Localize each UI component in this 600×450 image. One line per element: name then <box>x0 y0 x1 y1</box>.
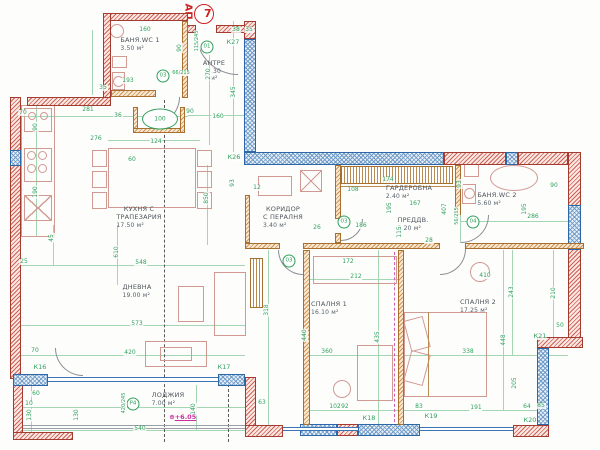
dimension-text: 35 <box>244 27 254 33</box>
fridge <box>24 195 52 221</box>
dimension-text: 212 <box>349 274 362 280</box>
dimension-text: 93 <box>230 178 236 188</box>
chair <box>92 171 107 188</box>
partition-wall <box>182 21 188 98</box>
dimension-text: 90 <box>549 183 559 189</box>
chair <box>92 150 107 167</box>
dimension-text: 540 <box>133 426 146 432</box>
window-marker: К19 <box>425 412 438 420</box>
masonry-wall <box>218 374 245 386</box>
living-wardrobe <box>250 258 263 308</box>
window-marker: К21 <box>534 332 547 340</box>
dimension-text: 38 <box>231 27 241 33</box>
dimension-text: 10 <box>24 401 34 407</box>
dimension-text: 191 <box>469 405 482 411</box>
bed-divider <box>428 312 429 397</box>
toilet-bowl <box>464 188 475 199</box>
masonry-wall <box>537 348 549 425</box>
dimension-text: 50 <box>555 323 565 329</box>
shaft-marker: 100 <box>142 109 178 130</box>
wardrobe-hangers <box>341 166 453 184</box>
dimension-text: 548 <box>134 260 147 266</box>
dining-table <box>108 148 196 208</box>
room-area: 17.25 м² <box>460 307 488 314</box>
exterior-wall <box>13 379 23 440</box>
dimension-text: 276 <box>89 136 102 142</box>
dimension-text: 286 <box>526 214 539 220</box>
window-marker: К20 <box>524 416 537 424</box>
dimension-text: 345 <box>231 85 237 98</box>
window-marker: К16 <box>34 363 47 371</box>
door-swing-arc <box>440 249 466 275</box>
dimension-text: 193 <box>121 78 134 84</box>
burner <box>38 164 47 173</box>
exterior-wall <box>13 432 73 440</box>
partition-wall <box>303 243 440 249</box>
dimension-text: 407 <box>442 202 448 215</box>
dimension-text: 190 <box>33 185 39 198</box>
dimension-text: 186 <box>354 223 367 229</box>
dimension-text: 243 <box>509 285 515 298</box>
dimension-text: 90 <box>33 122 39 132</box>
room-area: 2.40 м² <box>386 193 410 200</box>
dimension-text: 60 <box>31 391 41 397</box>
sink-1 <box>112 56 127 68</box>
dimension-text: 25 <box>19 259 29 265</box>
chair <box>197 171 212 188</box>
sofa <box>214 272 246 336</box>
hall-cabinet <box>258 176 292 196</box>
window-marker: К17 <box>218 363 231 371</box>
door-tag: Р4 <box>127 398 140 411</box>
masonry-wall <box>506 152 518 165</box>
room-area: 16.10 м² <box>311 309 339 316</box>
door-tag: 03 <box>338 216 351 229</box>
room-label: БАНЯ.WC 13.50 м² <box>120 37 159 45</box>
dimension-text: 172 <box>341 259 354 265</box>
dimension-text: 610 <box>114 245 120 258</box>
window-marker: К27 <box>227 38 240 46</box>
masonry-wall <box>358 424 420 436</box>
door-tag: 04 <box>467 216 480 229</box>
door-size: 66/215 <box>172 70 190 76</box>
dimension-text: 360 <box>320 349 333 355</box>
dimension-text: 70 <box>30 348 40 354</box>
chair <box>197 150 212 167</box>
partition-wall <box>398 250 404 425</box>
apartment-number: 7 <box>204 5 212 22</box>
dimension-text: 115 <box>397 225 403 238</box>
sink-2 <box>464 164 479 177</box>
dimension-text: 435 <box>375 330 381 343</box>
dimension-text: 85 <box>536 403 546 409</box>
dimension-line <box>303 410 549 411</box>
exterior-wall <box>103 13 188 21</box>
window-marker: К26 <box>228 153 241 161</box>
floor-plan-canvas: АП. 7 100БАНЯ.WC 13.50 м²АНТРЕ4.30 м²КУХ… <box>0 0 600 450</box>
sink-basin <box>28 112 36 120</box>
dimension-text: 90 <box>177 43 183 53</box>
dimension-text: 850 <box>204 191 210 204</box>
masonry-wall <box>244 39 256 152</box>
partition-wall <box>111 90 156 97</box>
room-area: 19.00 м² <box>122 292 150 299</box>
room-label: КОРИДОР С ПЕРАЛНЯ3.40 м² <box>263 206 303 222</box>
burner <box>27 151 36 160</box>
room-label: ГАРДЕРОБНА2.40 м² <box>386 185 432 193</box>
dimension-text: 573 <box>130 321 143 327</box>
dimension-text: 318 <box>264 303 270 316</box>
dimension-text: 26 <box>312 225 322 231</box>
dimension-text: 70 <box>18 110 28 116</box>
exterior-wall <box>245 425 283 437</box>
dimension-text: 36 <box>113 113 123 119</box>
partition-wall <box>245 195 250 243</box>
room-label: ЛОДЖИЯ7.00 м² <box>152 392 185 400</box>
room-label: СПАЛНЯ 116.10 м² <box>311 301 347 309</box>
dimension-text: 63 <box>257 400 267 406</box>
window <box>420 427 513 431</box>
door-tag: 03 <box>157 70 170 83</box>
masonry-wall <box>244 152 444 165</box>
coffee-table <box>178 286 204 322</box>
door-size: 56/215 <box>454 207 460 225</box>
room-label: ДНЕВНА19.00 м² <box>122 284 151 292</box>
dimension-text: 108 <box>346 187 359 193</box>
exterior-wall <box>513 425 549 437</box>
dimension-text: 440 <box>302 328 308 341</box>
dimension-text: 167 <box>408 201 421 207</box>
room-label: ПРЕДДВ.3.20 м² <box>398 217 429 225</box>
chair <box>92 192 107 209</box>
exterior-wall <box>518 152 568 165</box>
room-area: 3.40 м² <box>263 222 287 229</box>
door-tag: 03 <box>283 255 296 268</box>
dimension-text: 35 <box>98 85 108 91</box>
elevation-marker: ⊕ +6.05 <box>169 413 174 421</box>
dimension-text: 93 <box>457 179 463 189</box>
exterior-wall <box>245 377 256 430</box>
partition-wall <box>245 243 280 249</box>
dimension-line <box>503 250 504 410</box>
room-area: 3.50 м² <box>120 45 144 52</box>
dimension-text: 205 <box>512 376 518 389</box>
door-size: 420/245 <box>121 393 127 414</box>
dimension-text: 160 <box>138 27 151 33</box>
room-area: 5.60 м² <box>477 200 501 207</box>
door-size: 115/245 <box>194 31 200 52</box>
bathtub <box>490 165 538 191</box>
dimension-text: 270 <box>206 67 212 80</box>
burner <box>38 151 47 160</box>
dimension-text: 281 <box>81 107 94 113</box>
dimension-line <box>268 250 269 425</box>
apartment-number-badge: 7 <box>194 4 214 24</box>
dimension-text: 102 <box>328 404 341 410</box>
door-swing-arc <box>55 348 83 376</box>
washing-machine <box>300 170 322 192</box>
desk <box>357 345 393 401</box>
dimension-text: 12 <box>252 185 262 191</box>
dimension-line <box>512 250 513 355</box>
dimension-text: 174 <box>381 177 394 183</box>
dimension-text: 45 <box>49 233 55 243</box>
partition-wall <box>465 243 584 249</box>
burner <box>27 164 36 173</box>
exterior-wall <box>27 97 111 106</box>
window-marker: К18 <box>363 414 376 422</box>
masonry-wall <box>13 374 48 386</box>
dimension-text: 130 <box>74 408 80 421</box>
desk-chair <box>333 380 351 398</box>
room-area: 7.00 м² <box>152 400 176 407</box>
dimension-text: 83 <box>414 404 424 410</box>
exterior-wall <box>10 97 21 379</box>
dimension-text: 28 <box>424 238 434 244</box>
dimension-text: 338 <box>461 349 474 355</box>
exterior-wall <box>444 152 506 165</box>
dimension-text: 160 <box>211 114 224 120</box>
window <box>283 427 358 431</box>
dimension-text: 448 <box>501 333 507 346</box>
dimension-text: 195 <box>387 201 393 214</box>
dimension-line <box>21 265 245 266</box>
dimension-text: 130 <box>27 408 33 421</box>
room-label: СПАЛНЯ 217.25 м² <box>460 299 496 307</box>
dimension-text: 64 <box>522 404 532 410</box>
room-area: 17.50 м² <box>116 222 144 229</box>
room-label: КУХНЯ С ТРАПЕЗАРИЯ17.50 м² <box>116 206 161 222</box>
dimension-text: 60 <box>127 157 137 163</box>
window <box>48 377 218 382</box>
dimension-text: 410 <box>478 273 491 279</box>
room-label: БАНЯ.WC 25.60 м² <box>477 192 516 200</box>
masonry-wall <box>10 150 21 166</box>
tv <box>160 347 192 361</box>
dimension-text: 210 <box>551 286 557 299</box>
door-tag: 01 <box>201 41 214 54</box>
dimension-text: 124 <box>149 139 162 145</box>
dimension-text: 90 <box>185 109 195 115</box>
dimension-line <box>92 30 93 95</box>
sink-basin <box>40 112 48 120</box>
dimension-text: 420 <box>123 350 136 356</box>
